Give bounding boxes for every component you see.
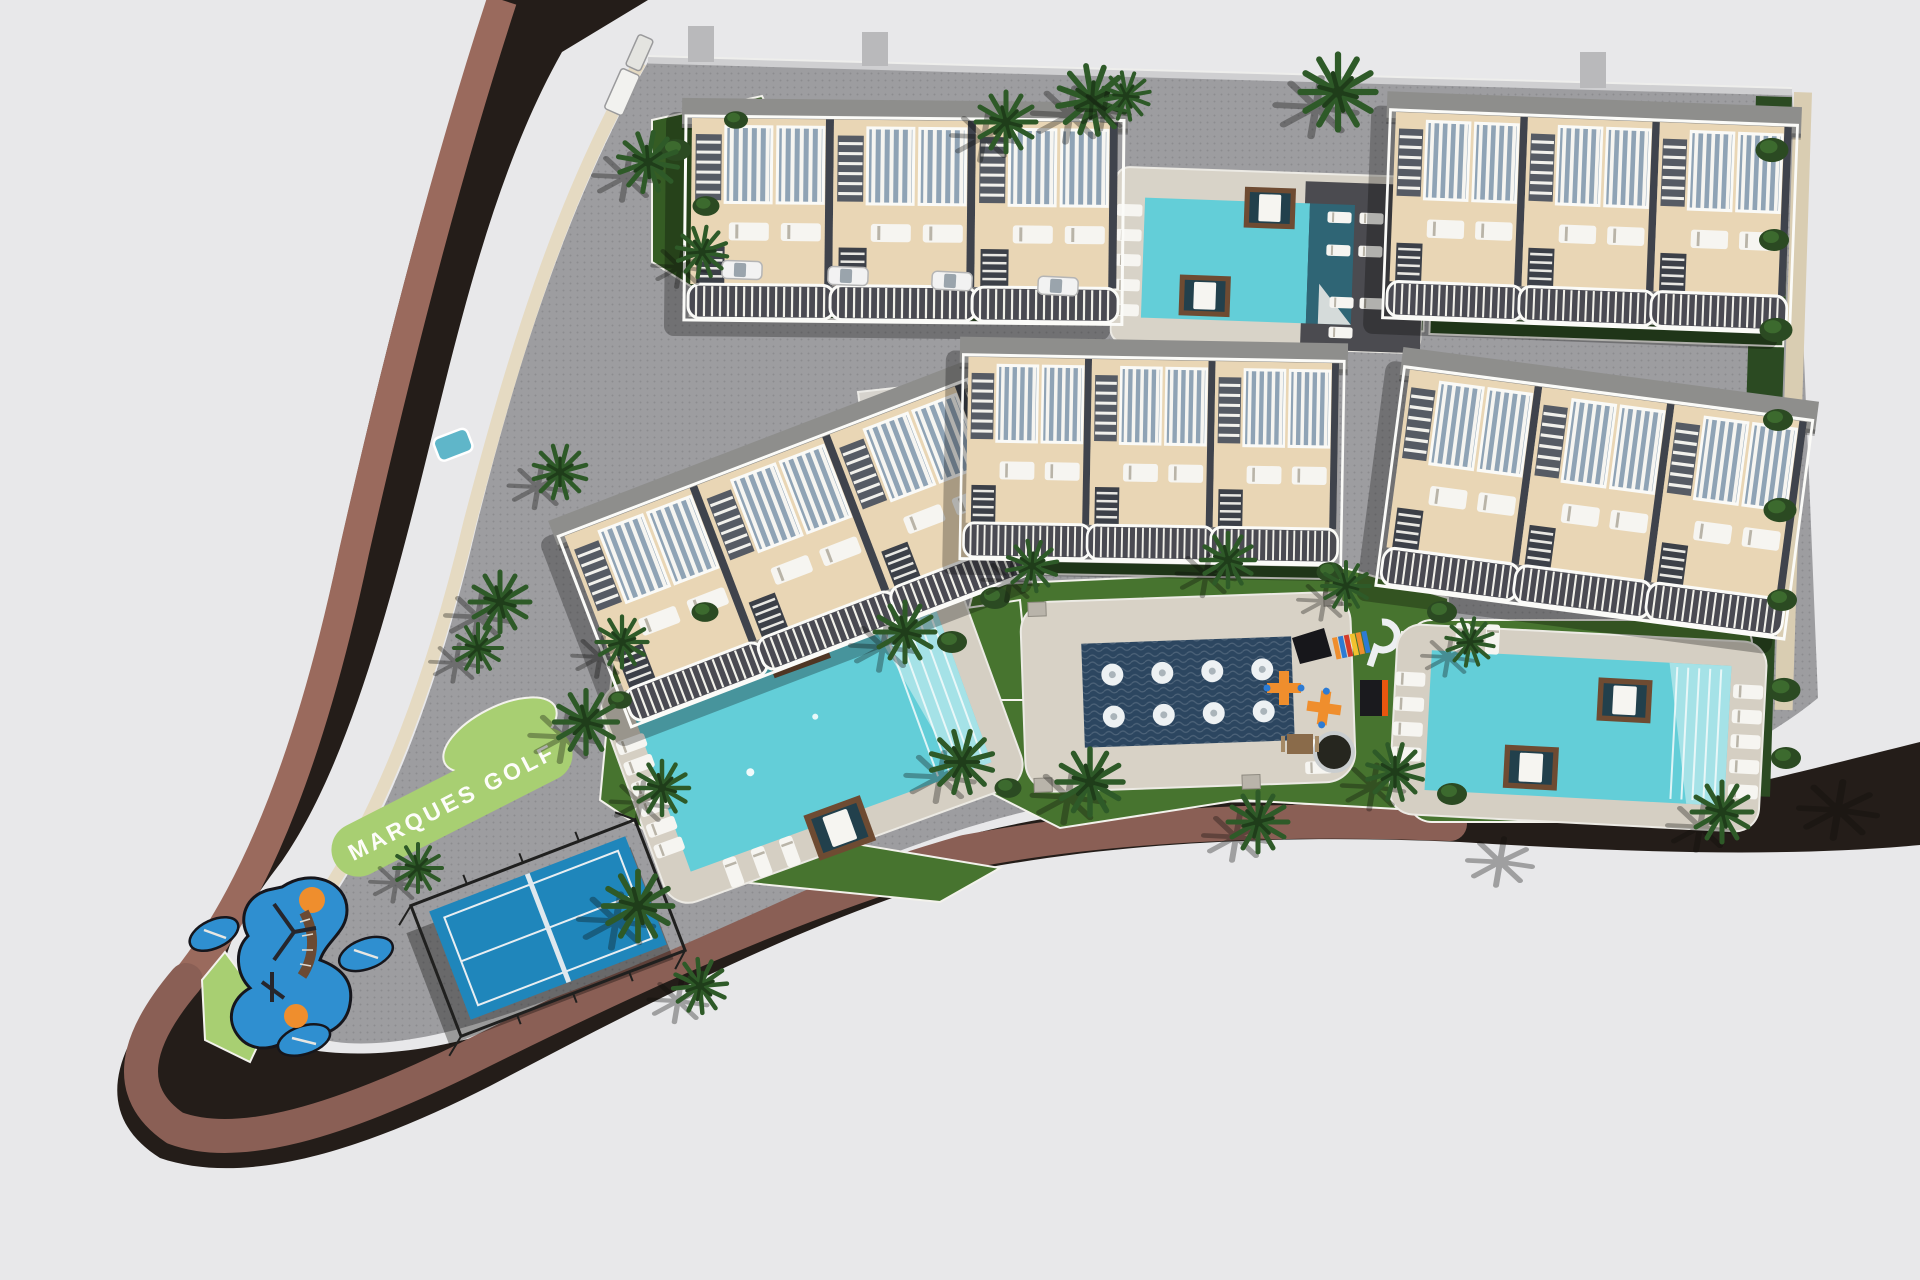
sidewalk-stub	[1580, 52, 1606, 88]
rubber-circle-orange	[284, 1004, 308, 1028]
site-plan-render: MARQUES GOLF	[0, 0, 1920, 1280]
splash-pad	[1020, 591, 1357, 796]
sidewalk-stub	[688, 26, 714, 62]
trampoline	[1315, 733, 1353, 771]
play-mat	[1360, 680, 1382, 716]
sidewalk-stub	[862, 32, 888, 66]
block-d-center	[956, 337, 1348, 566]
site-plan-canvas: MARQUES GOLF	[0, 0, 1920, 1280]
rubber-circle-orange	[299, 887, 325, 913]
play-mat-edge	[1382, 680, 1388, 716]
block-b-northeast	[1379, 91, 1802, 333]
